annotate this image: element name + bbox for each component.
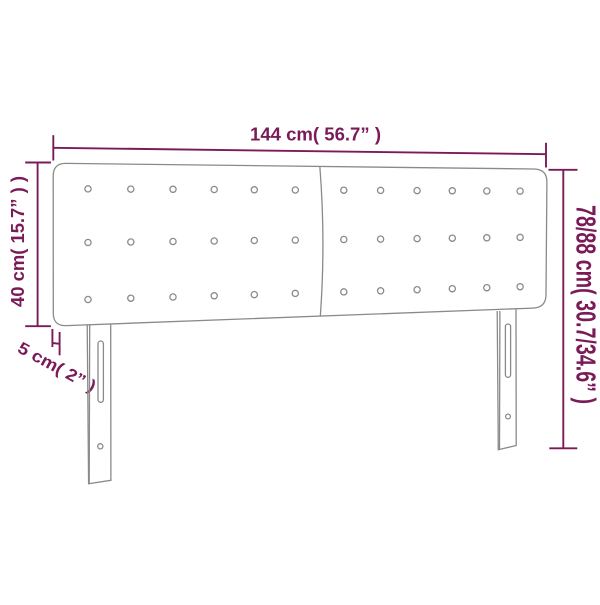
svg-text:40 cm( 15.7” ) ): 40 cm( 15.7” ) ) bbox=[7, 176, 28, 307]
svg-text:78/88 cm( 30.7/34.6” ): 78/88 cm( 30.7/34.6” ) bbox=[571, 205, 600, 404]
svg-text:144 cm( 56.7” ): 144 cm( 56.7” ) bbox=[250, 124, 381, 145]
